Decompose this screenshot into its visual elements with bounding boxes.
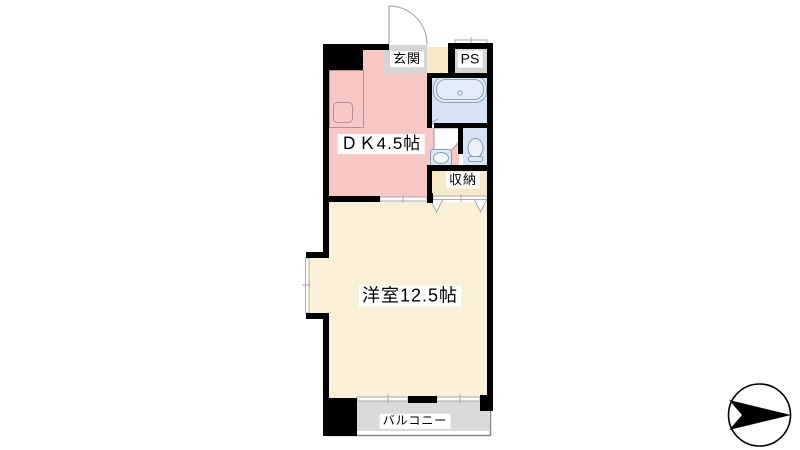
western-room-label: 洋室12.5帖 xyxy=(359,286,461,307)
wall-baywindow-bottom xyxy=(306,313,329,319)
wall-mid-post xyxy=(427,193,433,203)
wall-baywindow-top xyxy=(306,252,329,258)
dk-room-opening-line xyxy=(380,196,427,203)
compass-icon xyxy=(729,384,792,446)
wall-dk-bottom xyxy=(323,196,380,202)
wall-sanitary-top xyxy=(427,73,493,78)
pipe-space-label: PS xyxy=(458,51,483,68)
wall-bath-left xyxy=(427,78,432,128)
bay-window-floor xyxy=(309,258,329,313)
wall-toilet-divider xyxy=(458,128,463,154)
wall-bottom-right-corner xyxy=(480,395,493,411)
shoe-cabinet-floor xyxy=(427,47,448,73)
toilet-icon xyxy=(468,139,483,162)
bathtub-icon xyxy=(434,77,487,103)
floorplan-drawing xyxy=(0,0,800,450)
storage-label: 収納 xyxy=(446,172,480,188)
balcony-label: バルコニー xyxy=(380,414,451,429)
wall-bottom-mid xyxy=(408,396,437,403)
bay-window-glass xyxy=(303,258,311,313)
wall-left-upper xyxy=(323,44,329,254)
dining-kitchen-label: ＤＫ4.5帖 xyxy=(338,134,425,154)
entrance-door-swing-arc xyxy=(389,6,427,44)
wall-left-lower xyxy=(323,313,329,400)
wall-balcony-pillar xyxy=(323,398,357,436)
wall-right xyxy=(487,43,493,398)
wall-storage-top xyxy=(427,165,493,171)
wall-ps-left xyxy=(448,44,455,78)
wall-bath-bottom xyxy=(434,123,493,128)
wall-top-left xyxy=(323,44,389,50)
washbasin-icon xyxy=(431,150,452,167)
entrance-label: 玄関 xyxy=(390,51,424,67)
floors xyxy=(309,45,491,436)
floorplan-canvas: 玄関 PS ＤＫ4.5帖 収納 洋室12.5帖 バルコニー xyxy=(0,0,800,450)
